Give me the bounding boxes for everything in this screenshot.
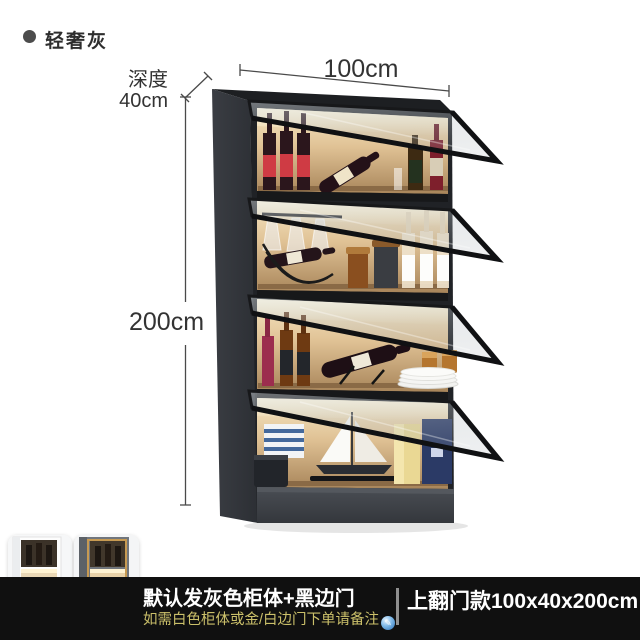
depth-dimension-label: 深度 40cm bbox=[98, 70, 168, 112]
plate-stack bbox=[398, 368, 458, 389]
footer-note-text-content: 如需白色柜体或金/白边门下单请备注 bbox=[143, 612, 379, 628]
height-dimension-label: 200cm bbox=[129, 308, 203, 337]
height-dimension-line bbox=[180, 97, 191, 505]
width-dimension-label: 100cm bbox=[318, 55, 404, 84]
color-option-label: 轻奢灰 bbox=[45, 26, 108, 53]
product-image: 轻奢灰 100cm 深度 40cm 200cm bbox=[0, 0, 640, 640]
footer-note-text: 如需白色柜体或金/白边门下单请备注✎ bbox=[143, 608, 395, 630]
base-plinth bbox=[257, 487, 454, 523]
note-emoji-icon: ✎ bbox=[381, 616, 395, 630]
footer-default-text: 默认发灰色柜体+黑边门 bbox=[143, 582, 355, 611]
depth-label-text: 深度 bbox=[98, 70, 168, 91]
footer-bar: 默认发灰色柜体+黑边门 如需白色柜体或金/白边门下单请备注✎ 上翻门款100x4… bbox=[0, 577, 640, 640]
size-variant-label: 上翻门款100x40x200cm bbox=[407, 585, 633, 615]
depth-value-text: 40cm bbox=[98, 91, 168, 112]
bullet-icon bbox=[23, 30, 36, 43]
footer-divider bbox=[396, 588, 399, 625]
